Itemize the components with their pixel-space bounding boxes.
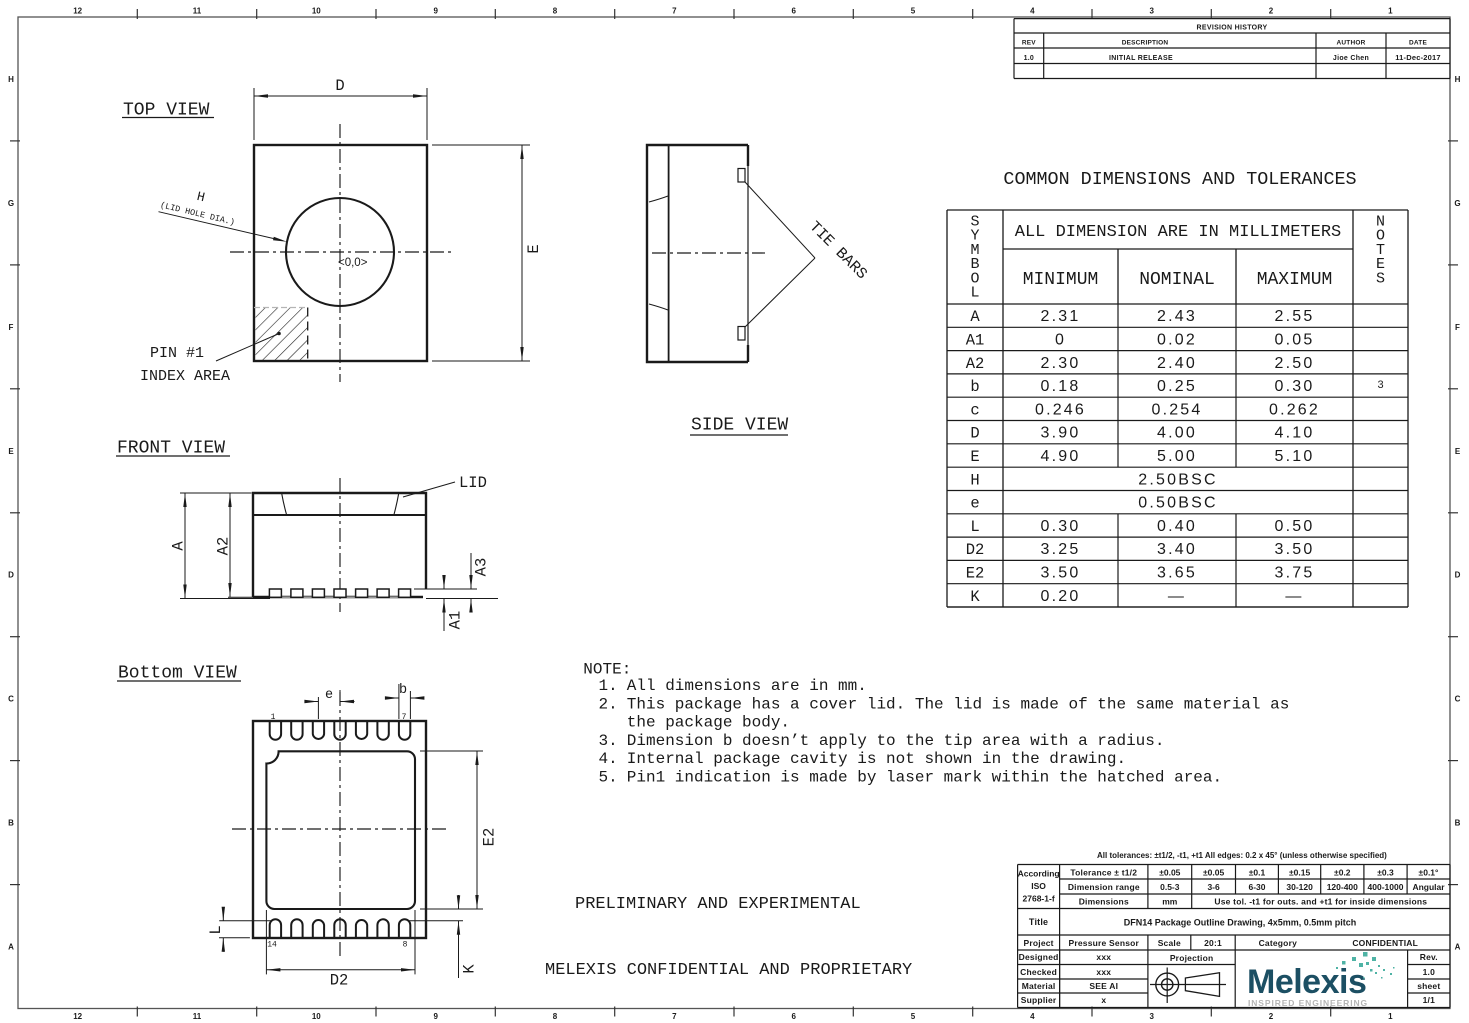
svg-text:NOMINAL: NOMINAL (1139, 270, 1215, 290)
svg-text:H: H (1455, 75, 1461, 84)
svg-text:e: e (325, 688, 333, 703)
svg-text:Checked: Checked (1020, 967, 1057, 977)
svg-text:Designed: Designed (1019, 952, 1059, 962)
svg-text:3: 3 (1377, 380, 1384, 392)
svg-text:4.10: 4.10 (1275, 425, 1315, 442)
svg-text:Dimension b doesn’t apply to t: Dimension b doesn’t apply to the tip are… (627, 732, 1165, 750)
svg-text:3.65: 3.65 (1157, 565, 1197, 582)
svg-text:3.25: 3.25 (1041, 541, 1081, 558)
svg-text:20:1: 20:1 (1204, 938, 1222, 948)
svg-text:E: E (1455, 447, 1461, 456)
svg-text:5: 5 (911, 7, 916, 16)
svg-text:Melexis: Melexis (1247, 963, 1366, 1001)
svg-text:C: C (8, 695, 14, 704)
svg-text:3-6: 3-6 (1207, 882, 1220, 892)
svg-text:xxx: xxx (1096, 952, 1111, 962)
svg-text:0.30: 0.30 (1041, 518, 1081, 535)
svg-text:MELEXIS CONFIDENTIAL AND PROPR: MELEXIS CONFIDENTIAL AND PROPRIETARY (545, 961, 912, 980)
svg-text:Category: Category (1259, 938, 1298, 948)
svg-text:Dimension range: Dimension range (1068, 882, 1140, 892)
svg-text:b: b (970, 378, 979, 396)
svg-text:A1: A1 (966, 332, 985, 350)
svg-text:SEE AI: SEE AI (1089, 981, 1118, 991)
svg-text:REVISION HISTORY: REVISION HISTORY (1197, 25, 1268, 32)
svg-text:A: A (170, 541, 188, 551)
svg-text:E: E (525, 244, 543, 253)
svg-text:2: 2 (1269, 7, 1274, 16)
svg-text:E: E (970, 448, 979, 466)
svg-text:3.50: 3.50 (1275, 541, 1315, 558)
svg-text:Rev.: Rev. (1420, 952, 1438, 962)
svg-text:3.: 3. (599, 732, 618, 750)
svg-text:2.50BSC: 2.50BSC (1138, 471, 1217, 488)
svg-text:A1: A1 (447, 611, 465, 630)
svg-text:Project: Project (1023, 938, 1053, 948)
svg-text:—: — (1168, 588, 1186, 605)
svg-text:±0.1: ±0.1 (1249, 868, 1266, 878)
svg-text:B: B (1455, 819, 1461, 828)
svg-text:Internal package cavity is not: Internal package cavity is not shown in … (627, 750, 1126, 768)
svg-text:mm: mm (1162, 897, 1178, 907)
svg-text:±0.15: ±0.15 (1289, 868, 1310, 878)
svg-text:11: 11 (193, 1012, 202, 1021)
svg-text:12: 12 (73, 1012, 82, 1021)
svg-text:H: H (8, 75, 14, 84)
svg-text:A2: A2 (966, 355, 985, 373)
svg-text:C: C (1455, 695, 1461, 704)
svg-text:400-1000: 400-1000 (1368, 882, 1404, 892)
svg-text:0.40: 0.40 (1157, 518, 1197, 535)
svg-text:D: D (970, 425, 979, 443)
svg-text:—: — (1285, 588, 1303, 605)
svg-text:REV: REV (1022, 40, 1036, 47)
svg-text:6: 6 (791, 1012, 796, 1021)
svg-text:PRELIMINARY AND EXPERIMENTAL: PRELIMINARY AND EXPERIMENTAL (575, 895, 861, 914)
svg-text:G: G (8, 199, 14, 208)
svg-text:F: F (1455, 323, 1460, 332)
svg-text:0.246: 0.246 (1035, 401, 1086, 418)
svg-text:D: D (335, 77, 344, 95)
svg-text:2.: 2. (599, 695, 618, 713)
svg-text:L: L (970, 285, 979, 302)
svg-text:±0.05: ±0.05 (1159, 868, 1180, 878)
svg-text:Material: Material (1022, 981, 1056, 991)
svg-text:4: 4 (1030, 7, 1035, 16)
svg-text:5.: 5. (599, 769, 618, 787)
svg-text:Jioe Chen: Jioe Chen (1333, 55, 1369, 62)
svg-text:2.50: 2.50 (1275, 355, 1315, 372)
svg-text:NOTE:: NOTE: (583, 661, 631, 679)
svg-text:All dimensions are in mm.: All dimensions are in mm. (627, 677, 867, 695)
svg-text:INITIAL RELEASE: INITIAL RELEASE (1109, 55, 1173, 62)
svg-text:E2: E2 (966, 565, 985, 583)
svg-text:0.30: 0.30 (1275, 378, 1315, 395)
svg-text:7: 7 (402, 713, 407, 722)
svg-text:<0,0>: <0,0> (338, 257, 368, 269)
svg-text:1: 1 (1388, 1012, 1393, 1021)
svg-text:6-30: 6-30 (1248, 882, 1265, 892)
svg-text:INDEX AREA: INDEX AREA (140, 368, 230, 385)
svg-text:3.50: 3.50 (1041, 565, 1081, 582)
svg-text:2.30: 2.30 (1041, 355, 1081, 372)
svg-text:14: 14 (267, 941, 277, 950)
svg-text:8: 8 (553, 1012, 558, 1021)
svg-text:Pin1 indication is made by las: Pin1 indication is made by laser mark wi… (627, 769, 1222, 787)
svg-text:SIDE VIEW: SIDE VIEW (691, 416, 788, 436)
svg-text:4.: 4. (599, 750, 618, 768)
svg-text:e: e (970, 495, 979, 513)
svg-text:2.55: 2.55 (1275, 308, 1315, 325)
svg-text:D2: D2 (330, 972, 349, 990)
svg-text:xxx: xxx (1096, 967, 1111, 977)
svg-text:5: 5 (911, 1012, 916, 1021)
svg-text:H: H (970, 471, 979, 489)
svg-text:4: 4 (1030, 1012, 1035, 1021)
svg-text:0: 0 (1055, 332, 1066, 349)
svg-text:±0.2: ±0.2 (1334, 868, 1351, 878)
svg-text:8: 8 (553, 7, 558, 16)
svg-text:12: 12 (73, 7, 82, 16)
svg-text:This package has a cover lid.: This package has a cover lid. The lid is… (627, 695, 1290, 713)
svg-text:sheet: sheet (1417, 981, 1440, 991)
svg-text:1.: 1. (599, 677, 618, 695)
svg-text:±0.05: ±0.05 (1203, 868, 1224, 878)
svg-text:All tolerances: ±t1/2, -t1, +t: All tolerances: ±t1/2, -t1, +t1 All edge… (1097, 851, 1387, 860)
svg-text:D: D (8, 571, 14, 580)
svg-text:10: 10 (312, 7, 321, 16)
svg-text:A3: A3 (473, 558, 491, 577)
svg-text:D2: D2 (966, 541, 985, 559)
svg-text:1: 1 (1388, 7, 1393, 16)
svg-text:LID: LID (459, 474, 487, 492)
svg-text:A: A (8, 943, 14, 952)
svg-text:4.90: 4.90 (1041, 448, 1081, 465)
svg-text:±0.3: ±0.3 (1377, 868, 1394, 878)
svg-text:A: A (970, 308, 980, 326)
svg-text:b: b (399, 683, 407, 698)
svg-text:DATE: DATE (1409, 40, 1427, 47)
svg-text:DESCRIPTION: DESCRIPTION (1122, 40, 1169, 47)
svg-text:3.90: 3.90 (1041, 425, 1081, 442)
svg-text:5.10: 5.10 (1275, 448, 1315, 465)
svg-text:S: S (1376, 270, 1385, 287)
svg-text:Angular: Angular (1412, 882, 1445, 892)
svg-text:Use tol. -t1 for outs. and +t1: Use tol. -t1 for outs. and +t1 for insid… (1214, 897, 1427, 907)
svg-text:7: 7 (672, 7, 677, 16)
svg-text:2768-1-f: 2768-1-f (1023, 894, 1055, 904)
svg-text:MAXIMUM: MAXIMUM (1257, 270, 1333, 290)
svg-text:4.00: 4.00 (1157, 425, 1197, 442)
svg-text:x: x (1101, 995, 1106, 1005)
svg-text:L: L (970, 518, 979, 536)
svg-text:1.0: 1.0 (1423, 967, 1435, 977)
svg-text:2.40: 2.40 (1157, 355, 1197, 372)
svg-text:11: 11 (193, 7, 202, 16)
svg-text:L: L (207, 925, 225, 934)
svg-text:F: F (9, 323, 14, 332)
svg-text:MINIMUM: MINIMUM (1023, 270, 1099, 290)
svg-text:11-Dec-2017: 11-Dec-2017 (1395, 53, 1441, 62)
svg-text:ISO: ISO (1031, 881, 1046, 891)
svg-text:0.50BSC: 0.50BSC (1138, 495, 1217, 512)
svg-text:0.02: 0.02 (1157, 332, 1197, 349)
svg-text:2.31: 2.31 (1041, 308, 1081, 325)
svg-text:AUTHOR: AUTHOR (1336, 40, 1365, 47)
svg-text:INSPIRED ENGINEERING: INSPIRED ENGINEERING (1248, 998, 1368, 1008)
svg-text:A2: A2 (215, 537, 233, 556)
svg-text:0.05: 0.05 (1275, 332, 1315, 349)
svg-text:Tolerance ± t1/2: Tolerance ± t1/2 (1070, 868, 1137, 878)
svg-text:3: 3 (1149, 7, 1154, 16)
svg-text:0.50: 0.50 (1275, 518, 1315, 535)
svg-text:the package body.: the package body. (627, 714, 790, 732)
svg-text:3.75: 3.75 (1275, 565, 1315, 582)
svg-text:2: 2 (1269, 1012, 1274, 1021)
svg-text:COMMON DIMENSIONS AND TOLERANC: COMMON DIMENSIONS AND TOLERANCES (1003, 169, 1356, 190)
svg-text:7: 7 (672, 1012, 677, 1021)
svg-text:1/1: 1/1 (1423, 995, 1435, 1005)
svg-text:Dimensions: Dimensions (1079, 897, 1129, 907)
svg-text:2.43: 2.43 (1157, 308, 1197, 325)
svg-text:D: D (1455, 571, 1461, 580)
svg-text:3.40: 3.40 (1157, 541, 1197, 558)
svg-text:PIN #1: PIN #1 (150, 345, 204, 362)
svg-text:G: G (1454, 199, 1460, 208)
svg-text:0.25: 0.25 (1157, 378, 1197, 395)
svg-text:30-120: 30-120 (1286, 882, 1313, 892)
svg-text:Projection: Projection (1170, 953, 1214, 963)
svg-text:Pressure Sensor: Pressure Sensor (1069, 938, 1140, 948)
svg-text:3: 3 (1149, 1012, 1154, 1021)
svg-text:9: 9 (433, 1012, 438, 1021)
svg-text:0.20: 0.20 (1041, 588, 1081, 605)
svg-text:5.00: 5.00 (1157, 448, 1197, 465)
svg-text:10: 10 (312, 1012, 321, 1021)
svg-text:E: E (8, 447, 14, 456)
svg-text:According: According (1018, 869, 1060, 879)
svg-text:Title: Title (1029, 917, 1048, 927)
svg-text:9: 9 (433, 7, 438, 16)
svg-text:K: K (461, 964, 479, 974)
svg-text:B: B (8, 819, 14, 828)
svg-text:K: K (970, 588, 980, 606)
svg-text:c: c (970, 401, 979, 419)
svg-text:CONFIDENTIAL: CONFIDENTIAL (1352, 938, 1418, 948)
svg-text:0.18: 0.18 (1041, 378, 1081, 395)
svg-text:0.254: 0.254 (1151, 401, 1202, 418)
svg-text:A: A (1455, 943, 1461, 952)
svg-text:1: 1 (271, 713, 276, 722)
svg-text:0.262: 0.262 (1269, 401, 1320, 418)
svg-text:±0.1°: ±0.1° (1419, 868, 1439, 878)
svg-text:1.0: 1.0 (1024, 55, 1034, 62)
svg-text:Scale: Scale (1158, 938, 1181, 948)
svg-text:6: 6 (791, 7, 796, 16)
svg-text:0.5-3: 0.5-3 (1160, 882, 1180, 892)
svg-text:120-400: 120-400 (1327, 882, 1358, 892)
svg-text:E2: E2 (481, 828, 499, 847)
svg-text:Supplier: Supplier (1021, 995, 1057, 1005)
svg-text:ALL DIMENSION ARE IN MILLIMETE: ALL DIMENSION ARE IN MILLIMETERS (1015, 223, 1341, 242)
svg-text:DFN14 Package Outline Drawing,: DFN14 Package Outline Drawing, 4x5mm, 0.… (1124, 918, 1357, 928)
svg-text:8: 8 (403, 941, 408, 950)
